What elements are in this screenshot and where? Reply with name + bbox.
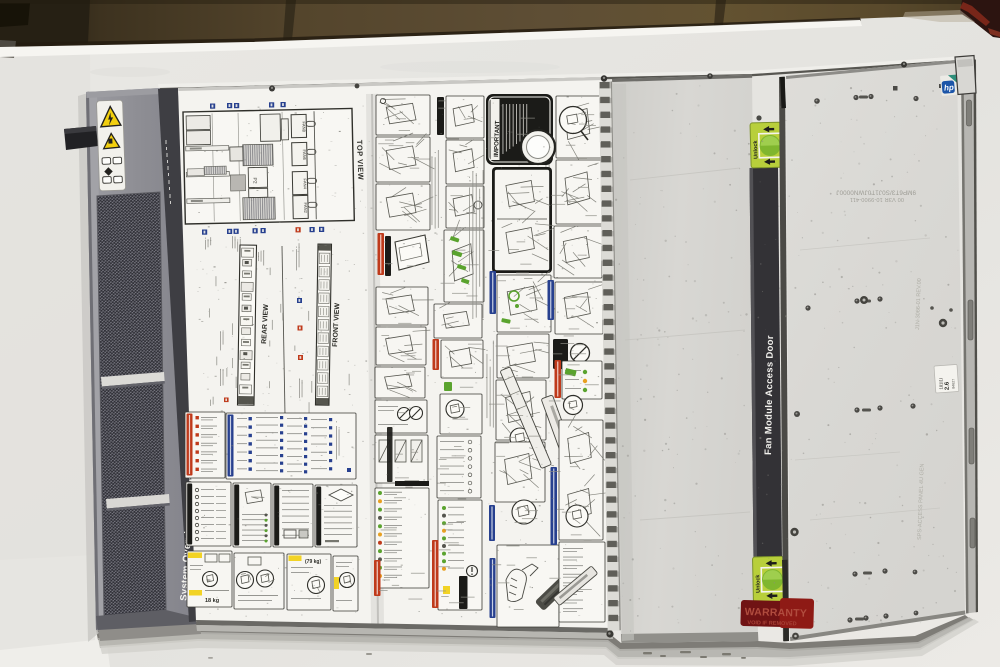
svg-text:P2: P2 <box>251 177 257 183</box>
svg-text:FAN4: FAN4 <box>302 178 307 189</box>
svg-text:18 kg: 18 kg <box>205 598 219 604</box>
svg-text:WARRANTY: WARRANTY <box>745 606 808 620</box>
svg-text:84627: 84627 <box>951 379 955 389</box>
svg-text:FAN8: FAN8 <box>301 121 306 132</box>
svg-text:hp: hp <box>944 83 955 93</box>
svg-text:IMPORTANT: IMPORTANT <box>493 120 501 157</box>
svg-text:Fan Module Access Door: Fan Module Access Door <box>763 335 776 455</box>
svg-text:1ll1l1l: 1ll1l1l <box>938 378 943 390</box>
svg-text:FAN6: FAN6 <box>302 149 307 160</box>
svg-text:00 V3R 10-9900-411: 00 V3R 10-9900-411 <box>850 196 904 202</box>
svg-text:(79 kg): (79 kg) <box>305 559 321 565</box>
svg-text:9MP6T3/S0J1T0JWN0000J: 9MP6T3/S0J1T0JWN0000J <box>836 189 916 196</box>
svg-text:FAN2: FAN2 <box>303 202 308 213</box>
svg-text:2.6: 2.6 <box>945 381 951 390</box>
svg-text:TOP VIEW: TOP VIEW <box>355 140 365 181</box>
